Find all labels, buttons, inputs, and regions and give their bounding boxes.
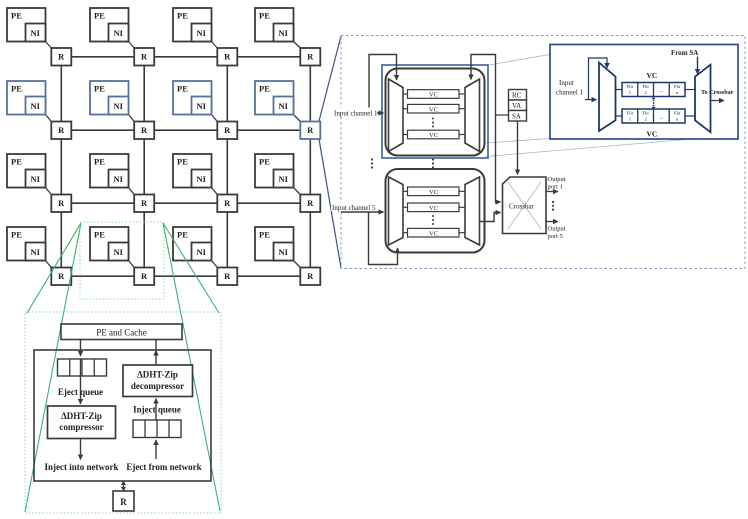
- svg-text:R: R: [224, 271, 231, 281]
- svg-text:PE: PE: [11, 84, 22, 94]
- svg-text:Output: Output: [548, 176, 566, 183]
- svg-text:ΔDHT-Zip: ΔDHT-Zip: [61, 411, 102, 421]
- svg-text:R: R: [58, 125, 65, 135]
- svg-text:From SA: From SA: [671, 49, 698, 57]
- svg-text:R: R: [141, 271, 148, 281]
- svg-text:NI: NI: [114, 247, 124, 257]
- svg-text:NI: NI: [197, 101, 207, 111]
- svg-text:R: R: [224, 125, 231, 135]
- svg-text:Crossbar: Crossbar: [509, 203, 535, 211]
- svg-text:VC: VC: [429, 230, 438, 237]
- svg-text:VC: VC: [429, 106, 438, 113]
- svg-text:R: R: [224, 52, 231, 62]
- svg-text:decompressor: decompressor: [131, 381, 184, 391]
- svg-text:VC: VC: [429, 132, 438, 139]
- svg-text:NI: NI: [114, 101, 124, 111]
- svg-text:Flit: Flit: [642, 111, 649, 116]
- svg-text:port 1: port 1: [548, 184, 563, 191]
- svg-text:NI: NI: [31, 174, 41, 184]
- svg-text:1: 1: [629, 90, 631, 95]
- svg-text:SA: SA: [512, 113, 521, 121]
- svg-text:Flit: Flit: [674, 84, 681, 89]
- svg-text:R: R: [224, 198, 231, 208]
- svg-text:NI: NI: [114, 174, 124, 184]
- svg-text:VC: VC: [429, 189, 438, 196]
- svg-text:channel 1: channel 1: [556, 89, 584, 97]
- svg-text:R: R: [58, 52, 65, 62]
- svg-text:RC: RC: [512, 92, 522, 100]
- svg-text:Flit: Flit: [627, 84, 634, 89]
- svg-text:R: R: [307, 198, 314, 208]
- svg-text:Eject from network: Eject from network: [126, 462, 201, 472]
- svg-text:NI: NI: [197, 174, 207, 184]
- svg-text:Inject into network: Inject into network: [45, 462, 119, 472]
- svg-text:Inject queue: Inject queue: [133, 405, 181, 415]
- svg-text:PE: PE: [94, 11, 105, 21]
- svg-text:Input: Input: [559, 79, 574, 87]
- svg-text:PE: PE: [259, 230, 270, 240]
- svg-text:NI: NI: [279, 174, 289, 184]
- svg-text:1: 1: [629, 117, 631, 122]
- svg-text:R: R: [58, 198, 65, 208]
- svg-text:R: R: [120, 497, 127, 507]
- svg-text:R: R: [307, 52, 314, 62]
- svg-text:compressor: compressor: [59, 422, 103, 432]
- svg-text:port 5: port 5: [548, 233, 563, 240]
- svg-text:NI: NI: [197, 28, 207, 38]
- svg-text:NI: NI: [279, 28, 289, 38]
- svg-text:PE: PE: [177, 84, 188, 94]
- svg-text:NI: NI: [279, 247, 289, 257]
- svg-text:PE: PE: [94, 157, 105, 167]
- svg-text:R: R: [307, 271, 314, 281]
- svg-text:NI: NI: [279, 101, 289, 111]
- svg-text:R: R: [141, 125, 148, 135]
- svg-text:2: 2: [644, 90, 646, 95]
- svg-text:PE: PE: [94, 230, 105, 240]
- svg-text:NI: NI: [31, 247, 41, 257]
- svg-text:2: 2: [644, 117, 646, 122]
- svg-text:NI: NI: [197, 247, 207, 257]
- svg-text:NI: NI: [114, 28, 124, 38]
- svg-text:Eject queue: Eject queue: [58, 387, 103, 397]
- svg-text:Flit: Flit: [674, 111, 681, 116]
- svg-text:VC: VC: [647, 130, 658, 139]
- svg-text:PE: PE: [11, 157, 22, 167]
- svg-text:To Crossbar: To Crossbar: [701, 89, 734, 96]
- svg-text:ΔDHT-Zip: ΔDHT-Zip: [137, 370, 178, 380]
- svg-text:...: ...: [660, 89, 664, 94]
- svg-text:VC: VC: [429, 205, 438, 212]
- svg-text:Output: Output: [548, 226, 566, 233]
- svg-text:PE: PE: [11, 230, 22, 240]
- svg-text:PE: PE: [177, 11, 188, 21]
- svg-text:NI: NI: [31, 28, 41, 38]
- svg-text:PE: PE: [259, 84, 270, 94]
- svg-text:PE: PE: [177, 157, 188, 167]
- svg-text:PE: PE: [177, 230, 188, 240]
- svg-text:R: R: [307, 125, 314, 135]
- svg-text:VC: VC: [647, 71, 658, 80]
- svg-text:PE: PE: [11, 11, 22, 21]
- svg-text:R: R: [141, 52, 148, 62]
- svg-text:PE: PE: [259, 157, 270, 167]
- svg-text:Input channel 5: Input channel 5: [332, 204, 376, 212]
- svg-text:R: R: [58, 271, 65, 281]
- svg-text:PE and Cache: PE and Cache: [96, 328, 146, 338]
- svg-text:PE: PE: [94, 84, 105, 94]
- svg-text:Input channel 1: Input channel 1: [334, 110, 378, 118]
- svg-text:Flit: Flit: [642, 84, 649, 89]
- svg-text:Flit: Flit: [627, 111, 634, 116]
- svg-text:...: ...: [660, 116, 664, 121]
- svg-text:VA: VA: [512, 102, 521, 110]
- svg-text:NI: NI: [31, 101, 41, 111]
- svg-text:R: R: [141, 198, 148, 208]
- svg-text:VC: VC: [429, 92, 438, 99]
- svg-text:PE: PE: [259, 11, 270, 21]
